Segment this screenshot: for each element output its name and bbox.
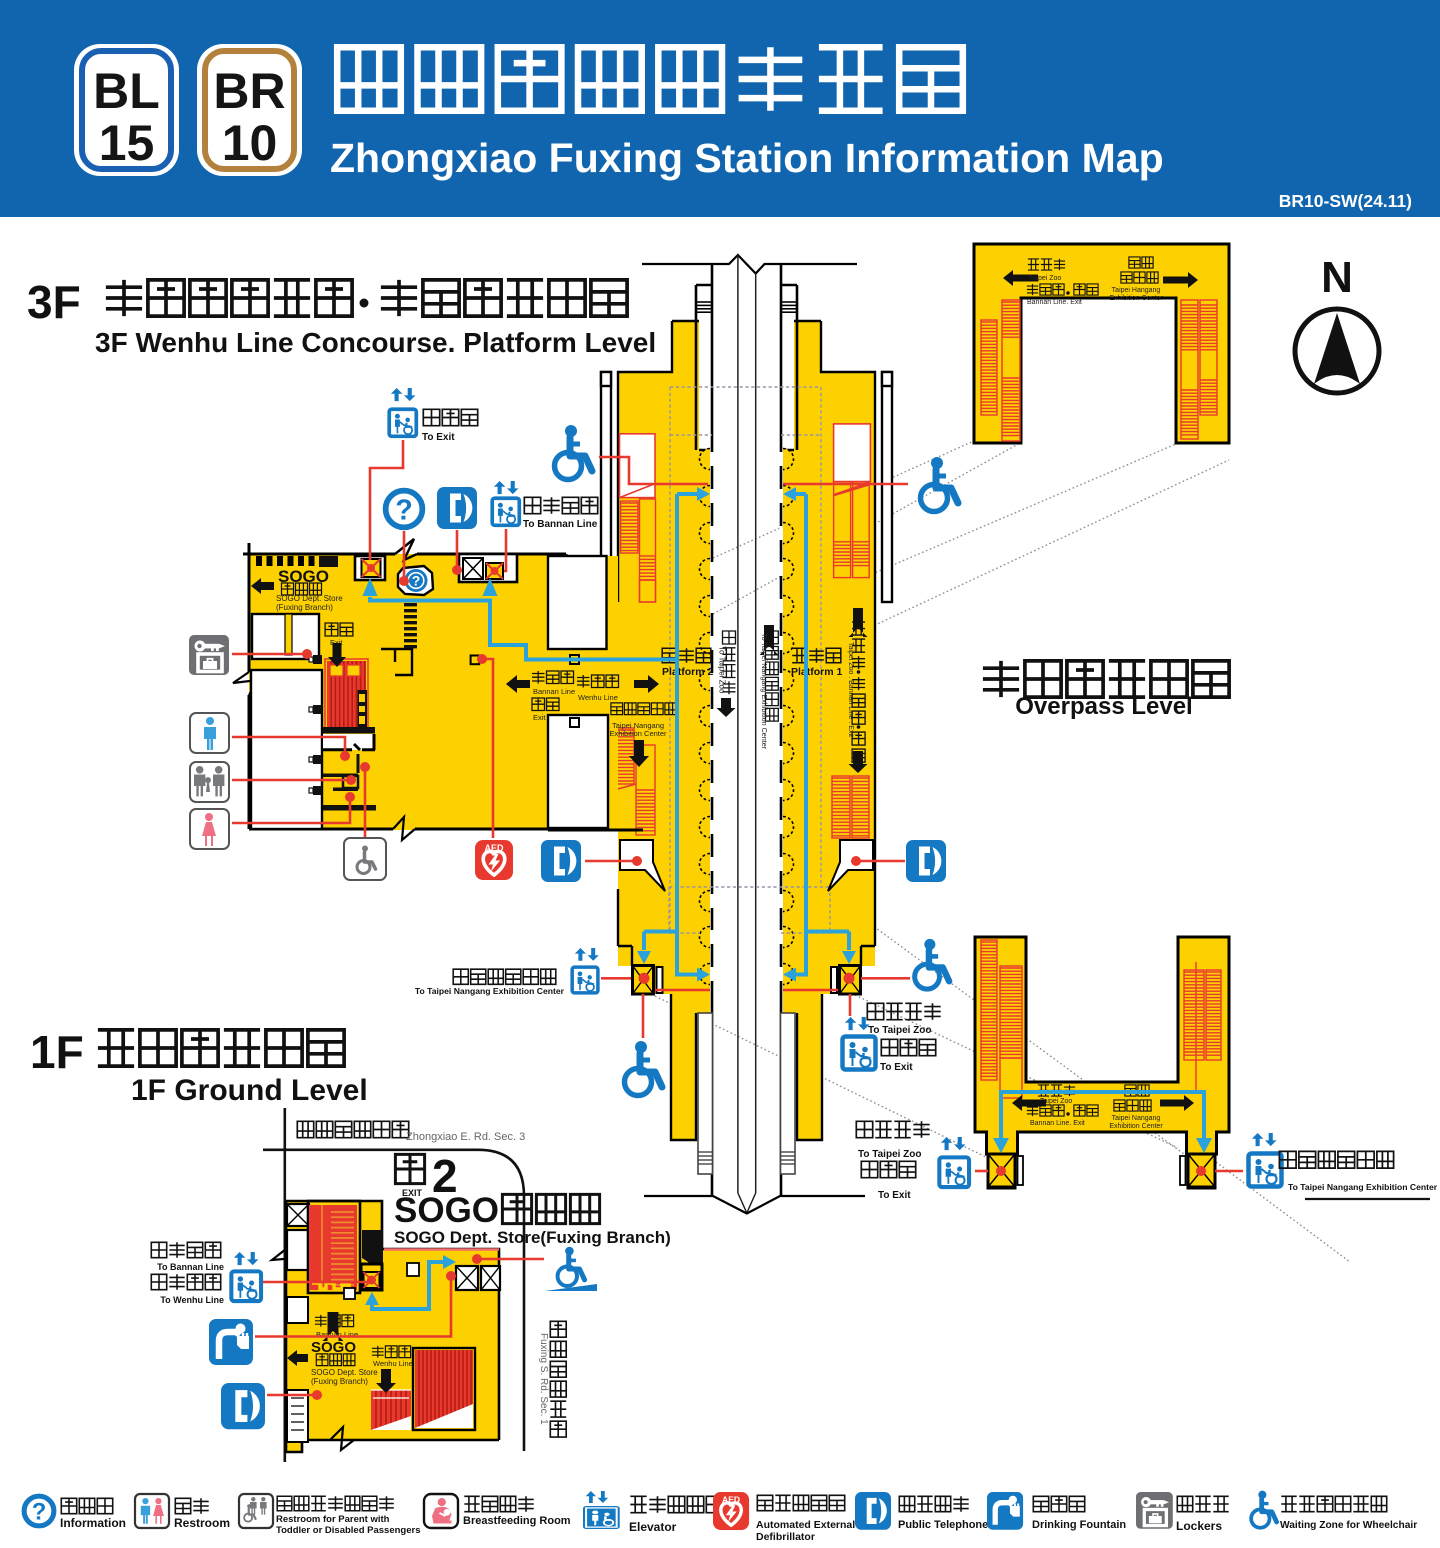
svg-text:Exhibition Center: Exhibition Center xyxy=(609,729,667,738)
svg-text:10: 10 xyxy=(222,115,278,171)
svg-text:Information: Information xyxy=(60,1516,126,1530)
svg-text:To Taipei Nangang Exhibition C: To Taipei Nangang Exhibition Center xyxy=(415,986,565,996)
svg-text:Lockers: Lockers xyxy=(1176,1519,1222,1533)
svg-text:To Taipei Nangang Exhibition C: To Taipei Nangang Exhibition Center xyxy=(1288,1182,1438,1192)
svg-text:BR10-SW(24.11): BR10-SW(24.11) xyxy=(1279,191,1412,211)
svg-text:?: ? xyxy=(32,1499,47,1526)
svg-text:Defibrillator: Defibrillator xyxy=(756,1531,815,1543)
svg-text:To Bannan Line: To Bannan Line xyxy=(157,1262,224,1272)
svg-text:To Taipei Zoo: To Taipei Zoo xyxy=(858,1149,922,1160)
svg-text:To Taipei Zoo: To Taipei Zoo xyxy=(718,646,727,694)
svg-text:(Fuxing Branch): (Fuxing Branch) xyxy=(311,1377,368,1386)
svg-text:Wenhu Line: Wenhu Line xyxy=(373,1359,413,1368)
svg-text:Zhongxiao E. Rd. Sec. 3: Zhongxiao E. Rd. Sec. 3 xyxy=(406,1131,525,1143)
svg-text:Zhongxiao Fuxing Station Infor: Zhongxiao Fuxing Station Information Map xyxy=(330,135,1164,181)
svg-text:3F: 3F xyxy=(27,276,81,328)
svg-text:Platform 1: Platform 1 xyxy=(791,666,843,678)
svg-text:Taipei Zoo: Taipei Zoo xyxy=(1029,275,1061,282)
svg-text:Breastfeeding Room: Breastfeeding Room xyxy=(463,1515,571,1527)
svg-text:SOGO: SOGO xyxy=(394,1191,499,1230)
svg-text:Elevator: Elevator xyxy=(629,1520,677,1534)
svg-text:15: 15 xyxy=(99,115,155,171)
svg-text:3F Wenhu Line Concourse. Plat: 3F Wenhu Line Concourse. Platform Level xyxy=(95,327,656,358)
svg-text:Toddler or Disabled Passengers: Toddler or Disabled Passengers xyxy=(276,1525,420,1536)
svg-text:Taipei Hangang: Taipei Hangang xyxy=(1112,287,1161,294)
svg-text:To Exit: To Exit xyxy=(880,1062,913,1073)
svg-text:Restroom for Parent with: Restroom for Parent with xyxy=(276,1514,390,1525)
svg-text:SOGO Dept. Store(Fuxing Branch: SOGO Dept. Store(Fuxing Branch) xyxy=(394,1228,671,1247)
svg-text:To Taipei Nangang Exhibition C: To Taipei Nangang Exhibition Center xyxy=(760,633,769,750)
svg-text:Exit: Exit xyxy=(533,713,546,722)
svg-text:Public Telephone: Public Telephone xyxy=(898,1519,988,1531)
svg-text:To Exit: To Exit xyxy=(422,432,455,443)
svg-text:To Bannan Line: To Bannan Line xyxy=(523,519,598,530)
svg-text:Bannan Line. Exit: Bannan Line. Exit xyxy=(1030,1120,1085,1127)
svg-text:Platform 2: Platform 2 xyxy=(662,666,714,678)
svg-text:Restroom: Restroom xyxy=(174,1516,230,1530)
svg-text:Bannan Line: Bannan Line xyxy=(533,687,575,696)
svg-text:Taipei Zoo . Bannan Line . Exi: Taipei Zoo . Bannan Line . Exit xyxy=(847,642,854,737)
svg-text:Drinking Fountain: Drinking Fountain xyxy=(1032,1519,1126,1531)
svg-text:Automated External: Automated External xyxy=(756,1519,855,1531)
svg-text:Bannan Line. Exit: Bannan Line. Exit xyxy=(1027,299,1082,306)
svg-text:1F Ground Level: 1F Ground Level xyxy=(131,1074,368,1107)
svg-text:To Exit: To Exit xyxy=(878,1190,911,1201)
svg-text:?: ? xyxy=(412,573,421,589)
svg-text:BR: BR xyxy=(213,63,285,119)
svg-text:To Wenhu Line: To Wenhu Line xyxy=(160,1295,224,1305)
svg-text:To Taipei Zoo: To Taipei Zoo xyxy=(868,1025,932,1036)
svg-text:SOGO Dept. Store: SOGO Dept. Store xyxy=(311,1368,378,1377)
svg-text:SOGO Dept. Store: SOGO Dept. Store xyxy=(276,594,343,603)
svg-text:BL: BL xyxy=(93,63,160,119)
svg-text:Exhibition Center: Exhibition Center xyxy=(1109,1123,1163,1130)
svg-text:1F: 1F xyxy=(30,1026,84,1078)
svg-text:Taipei Nangang: Taipei Nangang xyxy=(1112,1115,1161,1122)
svg-text:N: N xyxy=(1321,253,1353,302)
svg-text:Fuxing S. Rd. Sec. 1: Fuxing S. Rd. Sec. 1 xyxy=(538,1333,549,1425)
svg-text:Overpass Level: Overpass Level xyxy=(1015,693,1192,720)
svg-text:Exhibition Center: Exhibition Center xyxy=(1109,295,1163,302)
svg-text:Wenhu Line: Wenhu Line xyxy=(578,693,618,702)
svg-text:Waiting Zone for Wheelchair: Waiting Zone for Wheelchair xyxy=(1280,1520,1417,1531)
svg-text:(Fuxing Branch): (Fuxing Branch) xyxy=(276,603,333,612)
